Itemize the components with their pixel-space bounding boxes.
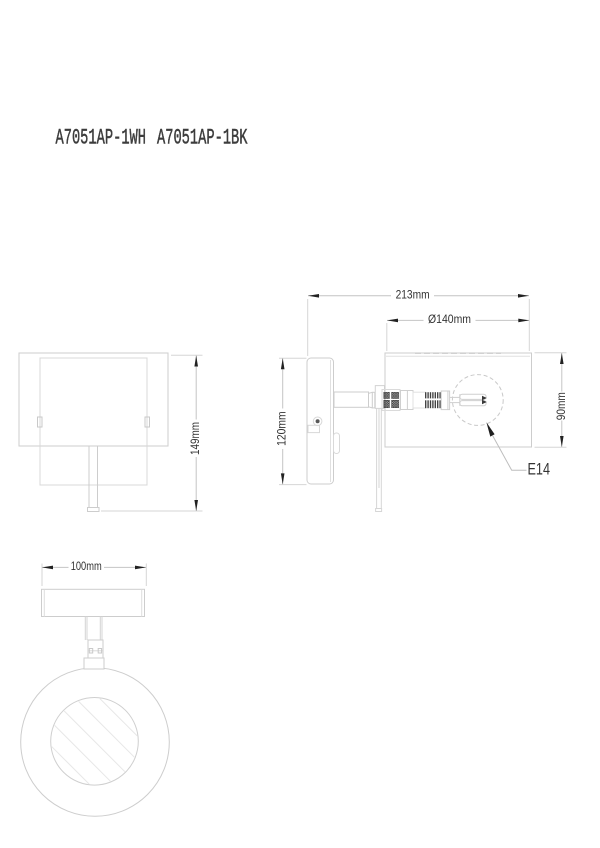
svg-text:120mm: 120mm: [275, 411, 289, 446]
svg-text:A7051AP-1WH: A7051AP-1WH: [56, 126, 147, 151]
svg-text:90mm: 90mm: [554, 392, 568, 420]
svg-text:149mm: 149mm: [188, 422, 202, 455]
svg-text:E14: E14: [528, 460, 551, 478]
svg-text:100mm: 100mm: [71, 559, 102, 573]
svg-text:A7051AP-1BK: A7051AP-1BK: [157, 126, 248, 151]
svg-text:Ø140mm: Ø140mm: [428, 312, 471, 326]
svg-text:213mm: 213mm: [396, 287, 430, 301]
